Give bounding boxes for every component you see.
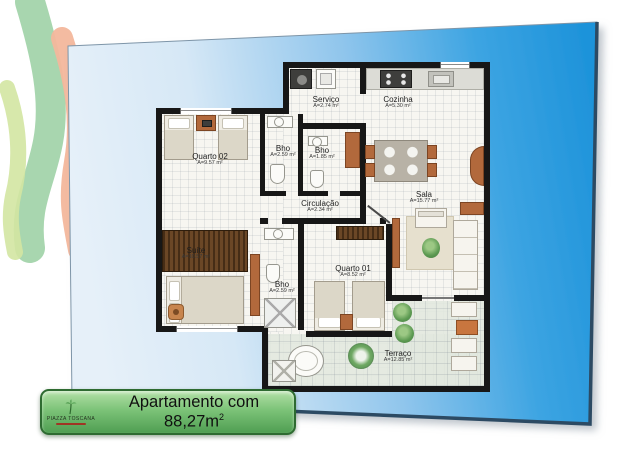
window-suite	[176, 326, 238, 332]
ribbon-yellow-green	[7, 88, 18, 252]
terrace-chair	[451, 302, 477, 317]
blanket	[181, 277, 243, 323]
ribbon-green	[29, 2, 51, 248]
oval-inner	[294, 351, 318, 371]
developer-logo: Piazza Toscana	[42, 399, 100, 425]
room-label-bho-pequeno: Bho A=1.85 m²	[309, 147, 335, 161]
wall-circ-top-b	[299, 191, 328, 196]
blanket	[165, 130, 193, 159]
sideboard	[392, 218, 400, 268]
tv-unit-curved	[470, 146, 484, 186]
room-label-quarto02: Quarto 02 A=9.57 m²	[192, 153, 228, 167]
sliding-door	[422, 297, 454, 299]
stove	[380, 70, 412, 88]
wall-sala-terrace-a	[392, 295, 422, 301]
wall-circ-bottom-a	[260, 218, 268, 224]
room-label-bho-suite: Bho A=2.59 m²	[269, 281, 295, 295]
sink-basin	[433, 75, 450, 84]
q01-nightstand	[340, 314, 353, 330]
sofa	[453, 220, 478, 290]
dining-table	[374, 140, 428, 182]
wall-terrace-left	[262, 330, 268, 392]
room-label-suite: Suíte A=10.57 m²	[182, 247, 211, 261]
wall-circ-top-c	[340, 191, 360, 196]
pillow	[318, 317, 341, 328]
banner-title: Apartamento com 88,27m2	[100, 393, 294, 432]
logo-tagline-bar	[56, 423, 86, 425]
potted-plant	[395, 324, 414, 343]
wall-bottom	[262, 386, 490, 392]
terrace-x-table	[272, 360, 296, 382]
bath2-toilet	[310, 170, 324, 188]
q01-bed-2	[352, 281, 385, 331]
blanket	[315, 282, 344, 318]
wall-quarto01-bottom	[306, 331, 392, 337]
armchair	[415, 208, 447, 228]
bath1-sink	[274, 117, 284, 127]
bath1-toilet	[270, 164, 285, 184]
dining-chair	[427, 145, 437, 159]
laundry-tub	[316, 69, 336, 89]
terrace-chair	[451, 356, 477, 371]
wall-sala-terrace-b	[454, 295, 484, 301]
dining-chair	[427, 163, 437, 177]
terrace-chair	[451, 338, 477, 353]
dining-chair	[365, 145, 375, 159]
kitchen-cabinet	[345, 132, 360, 168]
room-label-circulacao: Circulação A=2.34 m²	[301, 200, 339, 214]
plant	[422, 238, 440, 258]
window-quarto02	[180, 108, 232, 114]
washing-machine	[290, 69, 312, 89]
room-label-quarto01: Quarto 01 A=8.52 m²	[335, 265, 371, 279]
q02-nightstand	[196, 115, 216, 131]
potted-plant	[393, 303, 412, 322]
wall-q02-bath	[260, 114, 265, 196]
room-label-bho-social: Bho A=2.59 m²	[270, 145, 296, 159]
terrace-plant-rug	[348, 343, 374, 369]
kitchen-sink	[428, 71, 454, 87]
q01-wardrobe	[336, 226, 384, 240]
tub-basin	[320, 73, 332, 85]
side-table	[460, 202, 484, 215]
washer-door	[297, 75, 307, 85]
room-label-servico: Serviço A=2.74 m²	[313, 96, 340, 110]
room-label-terraco: Terraço A=12.85 m²	[384, 350, 413, 364]
room-label-sala: Sala A=15.77 m²	[410, 191, 439, 205]
suite-dresser	[250, 254, 260, 316]
pillow	[356, 317, 381, 328]
pillow	[168, 118, 190, 129]
armchair-back	[418, 211, 444, 217]
wall-servico-bottom	[303, 123, 366, 129]
shower-box	[264, 298, 296, 328]
tv	[202, 120, 212, 127]
wall-left	[156, 108, 162, 332]
wall-circ-bottom-b	[282, 218, 362, 224]
palm-tree-icon	[64, 399, 78, 415]
pillow	[169, 281, 180, 301]
floor-plan: Quarto 02 A=9.57 m² Bho A=2.59 m² Bho A=…	[156, 62, 490, 392]
wall-suitebath-right	[298, 224, 304, 330]
suite-pouf	[168, 304, 184, 320]
room-label-cozinha: Cozinha A=5.30 m²	[383, 96, 412, 110]
suitebath-sink	[273, 229, 283, 239]
terrace-chair-orange	[456, 320, 478, 335]
blanket	[353, 282, 384, 318]
q02-bed-1	[164, 115, 194, 160]
wall-circ-top-a	[260, 191, 286, 196]
pouf-dot	[173, 309, 179, 315]
pillow	[222, 118, 244, 129]
wall-right	[484, 62, 490, 392]
wall-servico-left	[283, 68, 289, 114]
logo-name: Piazza Toscana	[47, 416, 95, 422]
area-banner: Piazza Toscana Apartamento com 88,27m2	[40, 389, 296, 435]
dining-chair	[365, 163, 375, 177]
